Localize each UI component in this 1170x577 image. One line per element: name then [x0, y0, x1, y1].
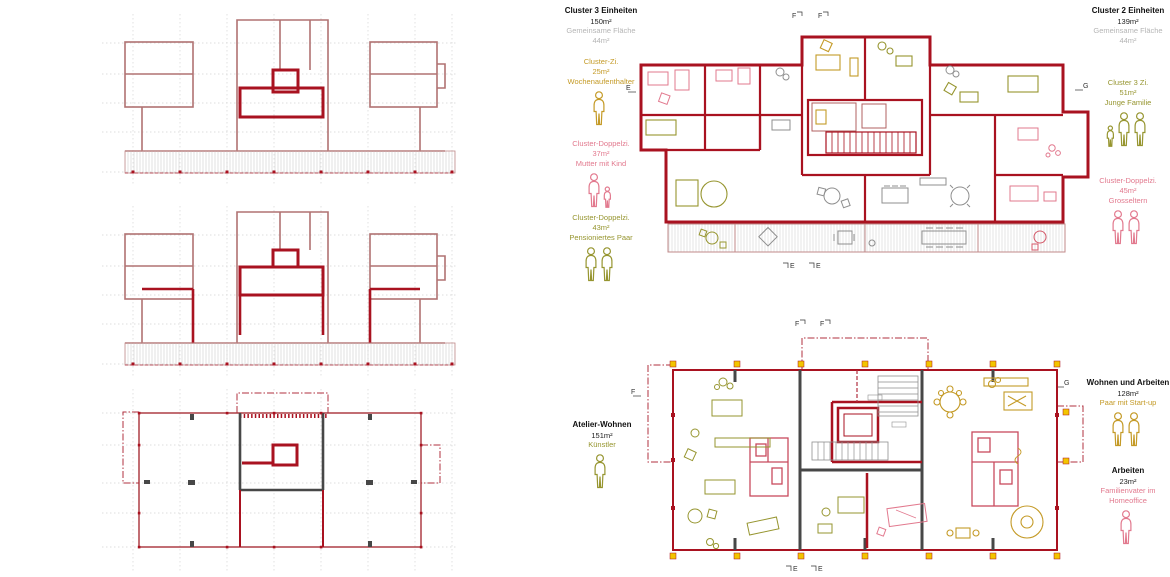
canopy-dashdot [123, 393, 440, 483]
annotation-cluster2-header: Cluster 2 Einheiten 139m² Gemeinsame Flä… [1088, 6, 1168, 46]
annotation-doppelzi-43: Cluster-Doppelzi. 43m² Pensioniertes Paa… [545, 213, 657, 283]
person-figures-icon [1111, 412, 1145, 448]
room-occupant: Grosseltern [1088, 196, 1168, 206]
person-figures-icon [1119, 510, 1137, 546]
svg-text:F: F [631, 389, 635, 396]
atelier-area: 151m² [556, 431, 648, 441]
person-figures-icon [1106, 112, 1151, 148]
floor-plan-schematic-middle [100, 200, 460, 392]
balcony [125, 151, 455, 174]
svg-text:E: E [793, 566, 798, 573]
annotation-doppelzi-37: Cluster-Doppelzi. 37m² Mutter mit Kind [545, 139, 657, 209]
room-area: 43m² [545, 223, 657, 233]
wohnen-occupant: Paar mit Start-up [1086, 398, 1170, 408]
wohnen-area: 128m² [1086, 389, 1170, 399]
floor-plan-cluster-level: F F E E E G [620, 0, 1095, 285]
annotation-arbeiten: Arbeiten 23m² Familienvater im Homeoffic… [1086, 466, 1170, 546]
arbeiten-title: Arbeiten [1086, 466, 1170, 477]
svg-text:F: F [792, 13, 796, 20]
arbeiten-area: 23m² [1086, 477, 1170, 487]
svg-text:E: E [790, 263, 795, 270]
cluster3-area: 150m² [545, 17, 657, 27]
cluster2-shared-area: 44m² [1088, 36, 1168, 46]
room-area: 25m² [545, 67, 657, 77]
room-area: 37m² [545, 149, 657, 159]
room-name: Cluster-Zi. [545, 57, 657, 67]
person-figures-icon [593, 454, 611, 490]
svg-text:E: E [816, 263, 821, 270]
cluster3-shared-area: 44m² [545, 36, 657, 46]
floor-plan-schematic-upper [100, 8, 460, 200]
cluster2-area: 139m² [1088, 17, 1168, 27]
room-name: Cluster-Doppelzi. [1088, 176, 1168, 186]
cluster3-shared-label: Gemeinsame Fläche [545, 26, 657, 36]
room-name: Cluster 3 Zi. [1088, 78, 1168, 88]
building-outline [125, 20, 445, 151]
occupant-figure [545, 247, 657, 283]
stair-core [240, 445, 323, 547]
room-name: Cluster-Doppelzi. [545, 139, 657, 149]
room-area: 51m² [1088, 88, 1168, 98]
person-figures-icon [587, 173, 616, 209]
occupant-figure [1088, 112, 1168, 148]
svg-text:G: G [1064, 380, 1069, 387]
annotation-doppelzi-45: Cluster-Doppelzi. 45m² Grosseltern [1088, 176, 1168, 246]
svg-text:F: F [795, 321, 799, 328]
annotation-cluster-3zi: Cluster 3 Zi. 51m² Junge Familie [1088, 78, 1168, 148]
annotation-atelier: Atelier-Wohnen 151m² Künstler [556, 420, 648, 490]
room-occupant: Wochenaufenthalter [545, 77, 657, 87]
annotation-cluster3-header: Cluster 3 Einheiten 150m² Gemeinsame Flä… [545, 6, 657, 46]
interior-walls [240, 413, 323, 490]
room-name: Cluster-Doppelzi. [545, 213, 657, 223]
occupant-figure [1086, 510, 1170, 546]
floor-plan-schematic-ground [100, 385, 460, 577]
columns [144, 414, 417, 547]
bearing-walls [142, 289, 420, 343]
room-area: 45m² [1088, 186, 1168, 196]
occupant-figure [545, 173, 657, 209]
room-occupant: Mutter mit Kind [545, 159, 657, 169]
plan-sheet: F F E E E G [0, 0, 1170, 577]
balcony [125, 343, 455, 366]
stair-core [240, 250, 323, 295]
room-occupant: Junge Familie [1088, 98, 1168, 108]
cluster2-shared-label: Gemeinsame Fläche [1088, 26, 1168, 36]
arbeiten-occupant: Familienvater im Homeoffice [1086, 486, 1170, 506]
person-figures-icon [592, 91, 610, 127]
occupant-figure [556, 454, 648, 490]
grid-columns-red [138, 412, 423, 549]
occupant-figure [545, 91, 657, 127]
room-occupant: Pensioniertes Paar [545, 233, 657, 243]
svg-text:E: E [818, 566, 823, 573]
cluster2-title: Cluster 2 Einheiten [1088, 6, 1168, 17]
atelier-title: Atelier-Wohnen [556, 420, 648, 431]
wohnen-title: Wohnen und Arbeiten [1086, 378, 1170, 389]
person-figures-icon [1111, 210, 1145, 246]
balcony [668, 224, 1065, 252]
floor-plan-ground-level: F F E E F G [620, 310, 1095, 577]
svg-text:F: F [818, 13, 822, 20]
svg-text:F: F [820, 321, 824, 328]
building-outline [125, 212, 445, 343]
cluster3-title: Cluster 3 Einheiten [545, 6, 657, 17]
occupant-figure [1088, 210, 1168, 246]
grid [102, 389, 458, 573]
annotation-wohnen-arbeiten: Wohnen und Arbeiten 128m² Paar mit Start… [1086, 378, 1170, 448]
person-figures-icon [584, 247, 618, 283]
stair-core [240, 70, 323, 117]
atelier-occupant: Künstler [556, 440, 648, 450]
occupant-figure [1086, 412, 1170, 448]
annotation-cluster-zi: Cluster-Zi. 25m² Wochenaufenthalter [545, 57, 657, 127]
building-outline [139, 413, 421, 547]
